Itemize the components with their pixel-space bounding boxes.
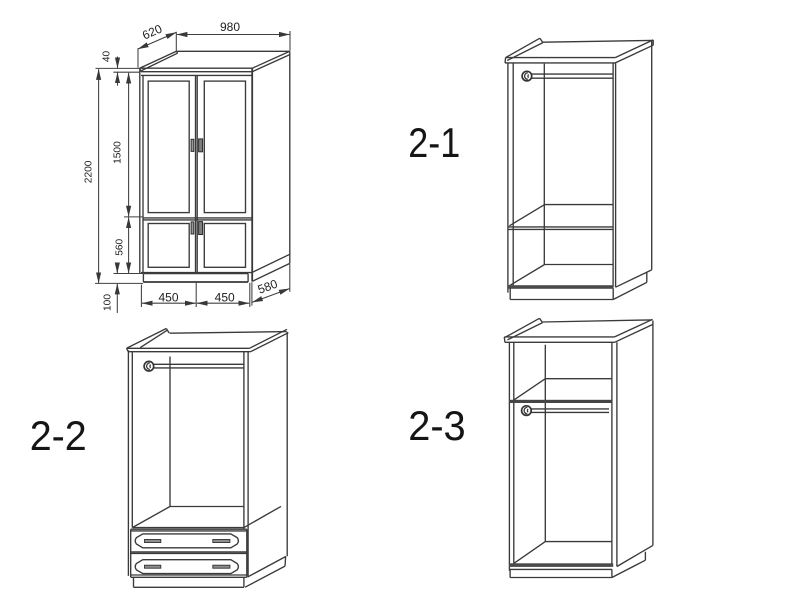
svg-text:1500: 1500 (113, 141, 124, 164)
svg-text:2-3: 2-3 (408, 402, 466, 449)
svg-text:2-1: 2-1 (408, 119, 460, 166)
svg-text:2-2: 2-2 (30, 412, 87, 459)
svg-text:40: 40 (101, 51, 112, 63)
svg-text:450: 450 (158, 290, 178, 304)
svg-text:2200: 2200 (84, 160, 95, 183)
svg-text:450: 450 (215, 290, 235, 304)
svg-text:980: 980 (220, 20, 240, 34)
svg-text:560: 560 (114, 238, 125, 255)
svg-text:100: 100 (102, 294, 113, 311)
